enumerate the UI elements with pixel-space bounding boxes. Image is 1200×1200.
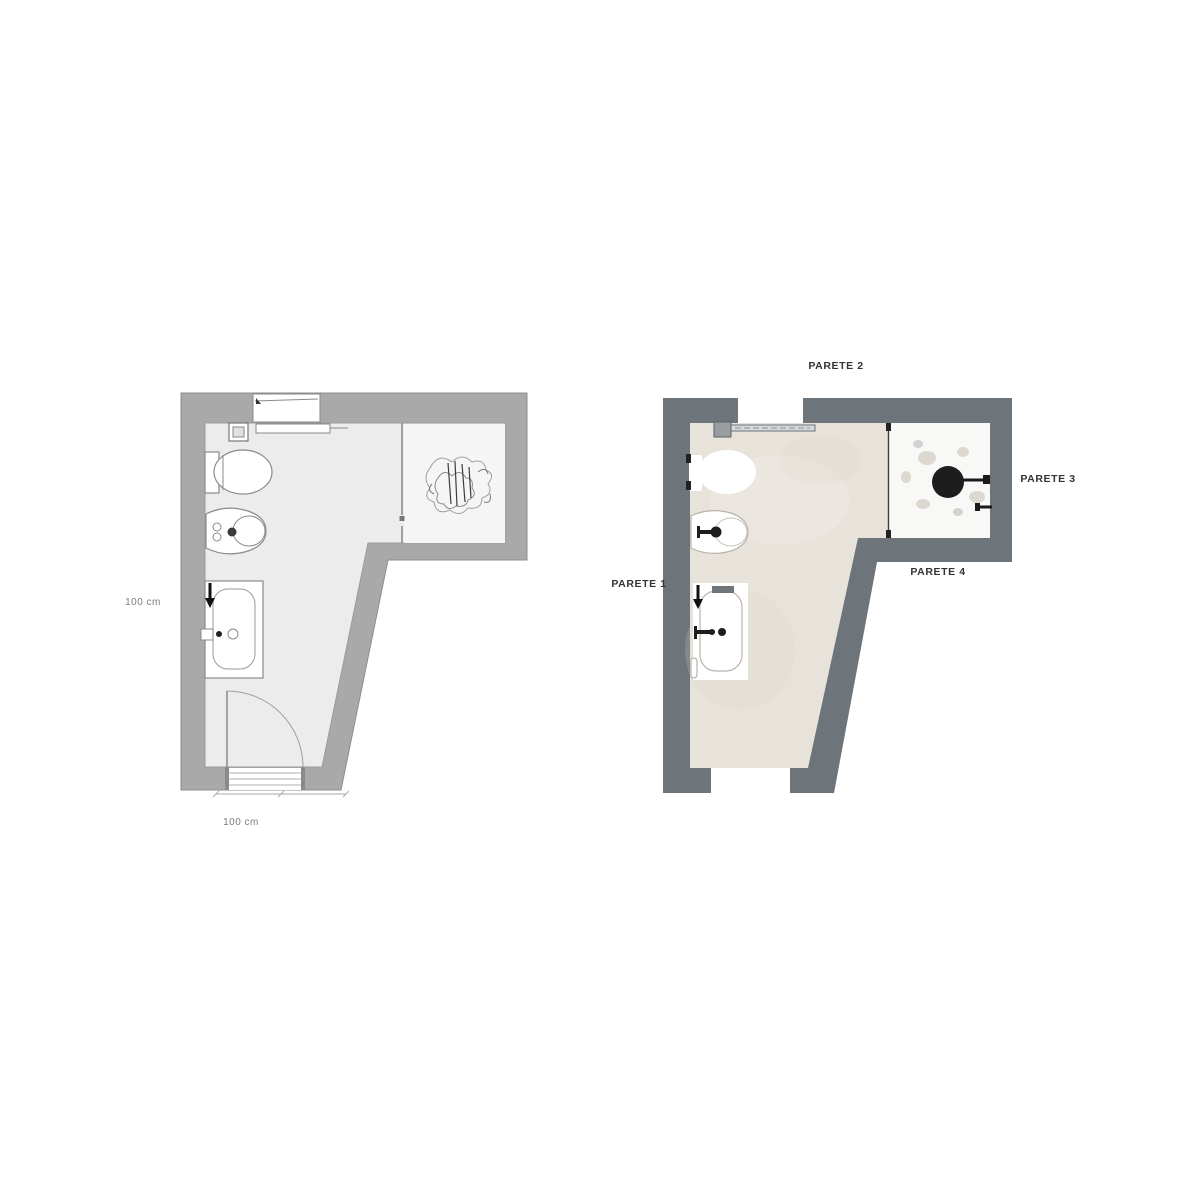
towel-bar-icon [712,586,734,593]
floor-plans-drawing [0,0,1200,1200]
dimension-label-side: 100 cm [118,597,168,608]
door-opening-icon [711,768,790,793]
wall-label-parete-3: PARETE 3 [1018,473,1078,485]
bidet-icon [691,511,748,554]
wall-label-parete-2: PARETE 2 [800,360,872,372]
toilet-icon [686,450,756,494]
window-icon [253,394,320,422]
tub-faucet-icon [201,629,213,640]
cistern-icon [229,423,248,441]
dimension-label-bottom: 100 cm [215,817,267,828]
toilet-icon [205,450,272,494]
right-plan [663,398,1012,793]
wall-label-parete-4: PARETE 4 [906,566,970,578]
wall-label-parete-1: PARETE 1 [611,578,667,590]
floor-plan-comparison: 100 cm 100 cm PARETE 2 PARETE 3 PARETE 4… [0,0,1200,1200]
left-shower-floor [404,424,505,543]
bathtub-icon [201,581,263,678]
bathtub-icon [691,583,748,680]
dimension-line [213,791,349,797]
left-plan [181,393,527,797]
bidet-icon [206,508,266,554]
window-icon [738,398,803,423]
